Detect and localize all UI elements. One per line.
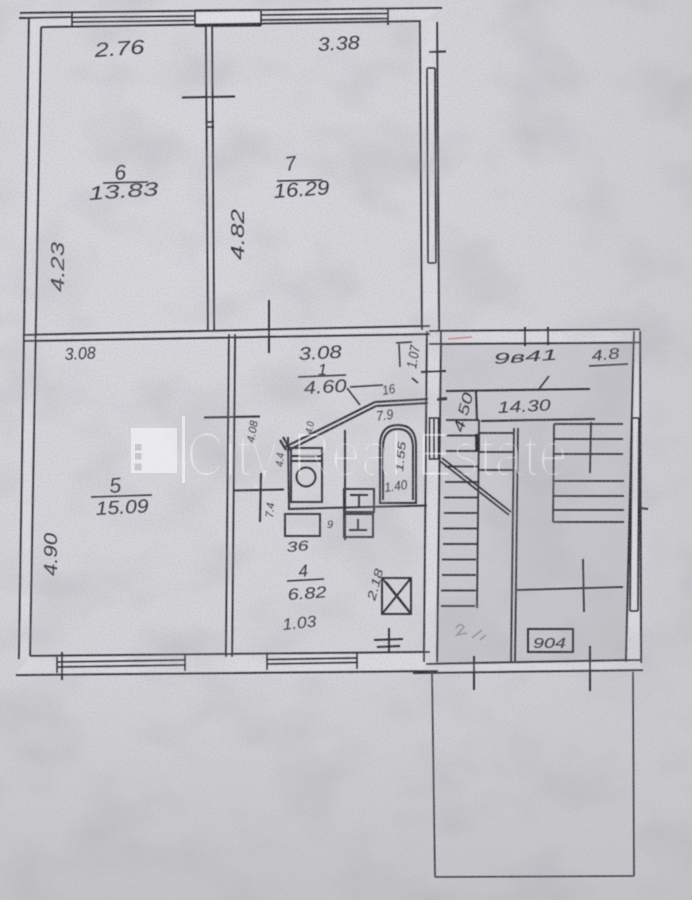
svg-text:City Real Estate: City Real Estate (186, 420, 568, 490)
